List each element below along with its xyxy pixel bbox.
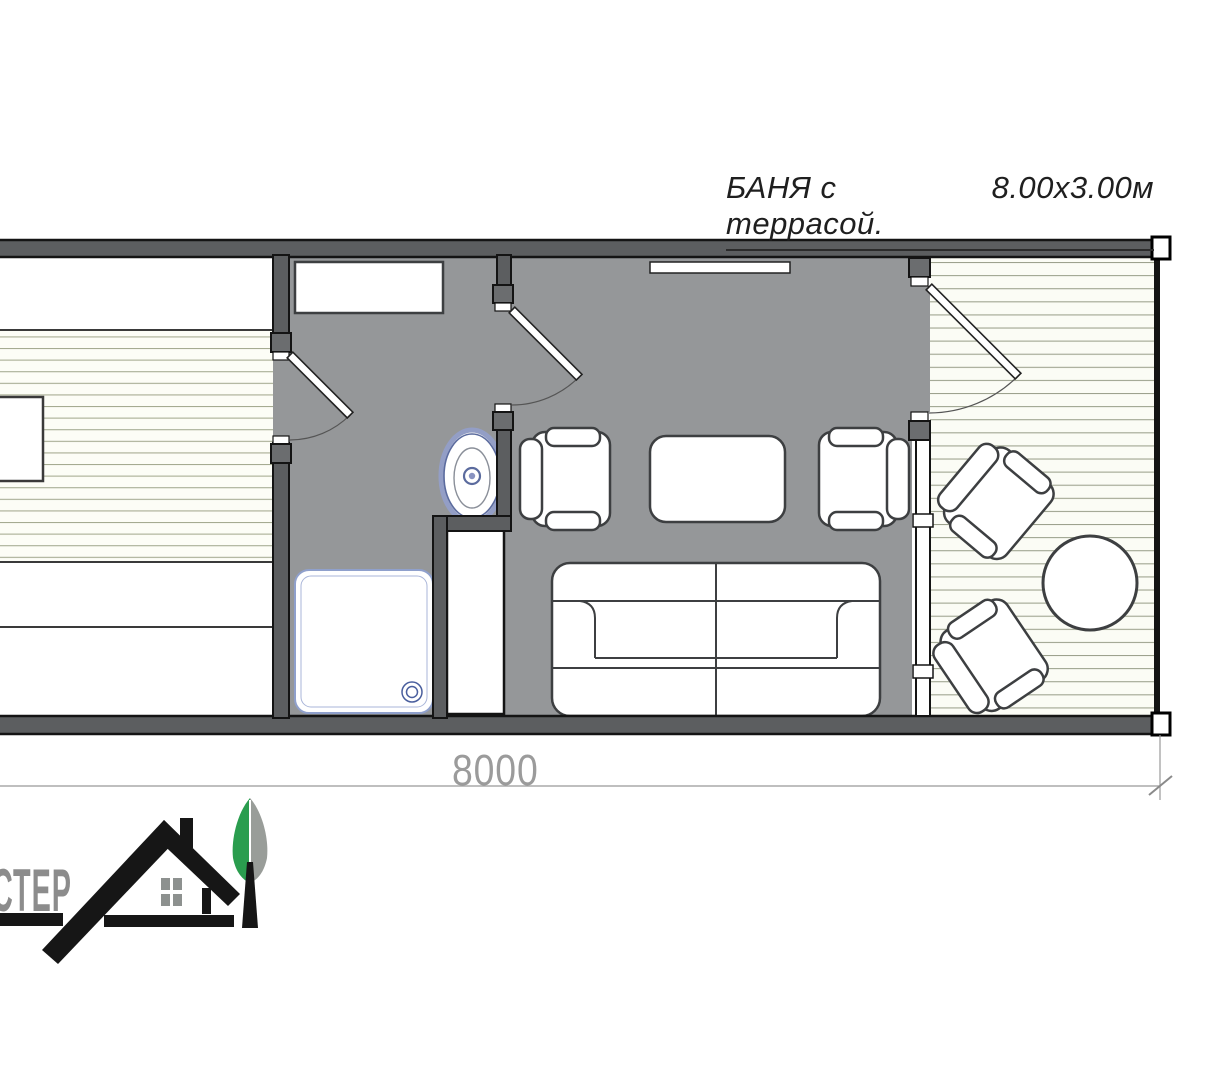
shower-tray — [295, 570, 433, 713]
sauna-door-threshold — [273, 351, 289, 437]
wall-washroom-mid — [497, 428, 511, 523]
coffee-table — [650, 436, 785, 522]
jamb-block — [493, 285, 513, 303]
washroom-shelf-bench — [295, 262, 443, 313]
jamb-block — [909, 421, 930, 440]
sauna-bench-top — [0, 255, 273, 330]
armchair-living-left — [520, 428, 610, 530]
jamb-block — [493, 412, 513, 430]
title-name: БАНЯ с террасой. — [726, 170, 992, 242]
jamb-cap — [495, 404, 511, 412]
wash-sink — [441, 430, 503, 522]
window-mullion — [913, 665, 933, 678]
terrace-post-top — [1152, 237, 1170, 259]
sauna-bench-upper-tier — [0, 562, 273, 627]
round-table — [1043, 536, 1137, 630]
jamb-cap — [273, 352, 289, 360]
drawing-title: БАНЯ с террасой. 8.00х3.00м — [726, 170, 1154, 251]
jamb-block — [909, 258, 930, 277]
wall-sauna-lower — [273, 443, 289, 718]
wall-washroom-lower — [433, 516, 447, 718]
dimension-line — [0, 735, 1172, 800]
title-size: 8.00х3.00м — [992, 170, 1154, 206]
wall-bottom — [0, 716, 1157, 734]
terrace-door-threshold — [912, 286, 930, 412]
wall-washroom-upper — [497, 255, 511, 287]
jamb-cap — [273, 436, 289, 444]
sauna-stove — [0, 397, 43, 481]
terrace-post-bottom — [1152, 713, 1170, 735]
dimension-label: 8000 — [452, 746, 539, 796]
cabinet — [447, 530, 504, 714]
armchair-living-right — [819, 428, 909, 530]
jamb-cap — [911, 277, 928, 286]
tree-icon — [233, 798, 268, 928]
jamb-cap — [911, 412, 928, 421]
terrace-edge — [1154, 258, 1160, 716]
sauna-bench-lower-tier — [0, 627, 273, 716]
window-mullion — [913, 514, 933, 527]
living-room-window — [650, 262, 790, 273]
wall-sauna-upper — [273, 255, 289, 335]
jamb-block — [271, 333, 291, 352]
sofa — [552, 563, 880, 716]
jamb-cap — [495, 303, 511, 311]
logo-text: СТЕР — [0, 856, 72, 925]
floor-plan-drawing — [0, 0, 1226, 1091]
floor-plan-sheet: БАНЯ с террасой. 8.00х3.00м 8000 СТЕР — [0, 0, 1226, 1091]
jamb-block — [271, 444, 291, 463]
